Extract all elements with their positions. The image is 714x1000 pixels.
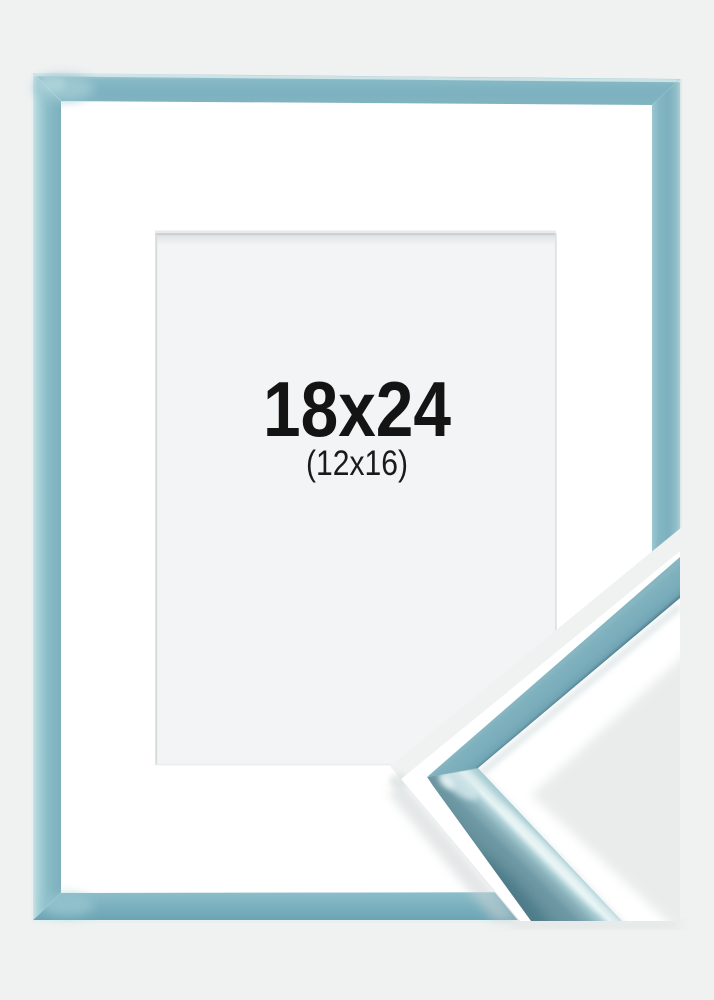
svg-text:18x24: 18x24: [263, 365, 451, 453]
svg-text:(12x16): (12x16): [306, 444, 408, 483]
